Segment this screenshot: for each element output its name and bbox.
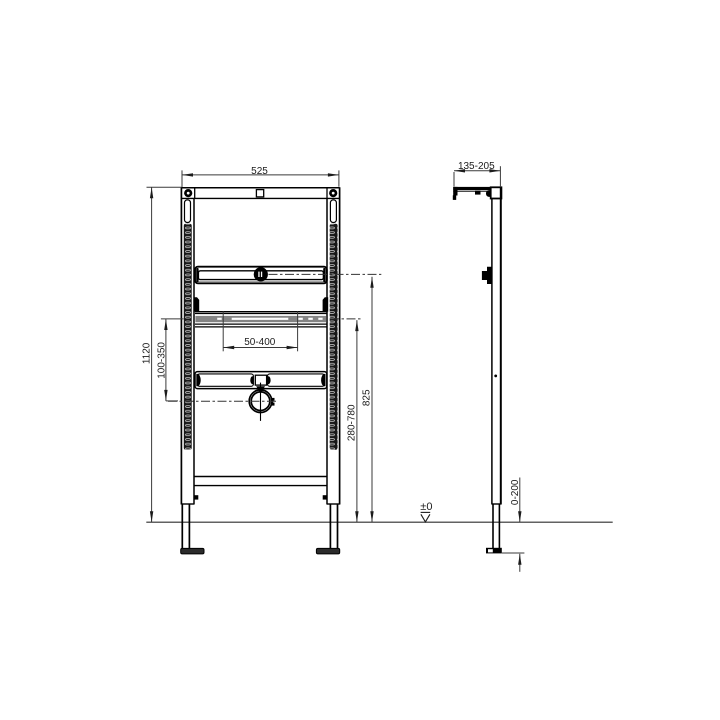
svg-text:100-350: 100-350 <box>156 342 167 379</box>
svg-text:1120: 1120 <box>142 342 153 364</box>
svg-text:525: 525 <box>251 166 268 177</box>
svg-text:135-205: 135-205 <box>458 161 495 172</box>
svg-text:0-200: 0-200 <box>510 479 521 505</box>
svg-text:±0: ±0 <box>420 501 432 513</box>
svg-text:50-400: 50-400 <box>244 337 276 348</box>
svg-text:280-780: 280-780 <box>346 404 357 441</box>
svg-text:825: 825 <box>361 389 372 406</box>
